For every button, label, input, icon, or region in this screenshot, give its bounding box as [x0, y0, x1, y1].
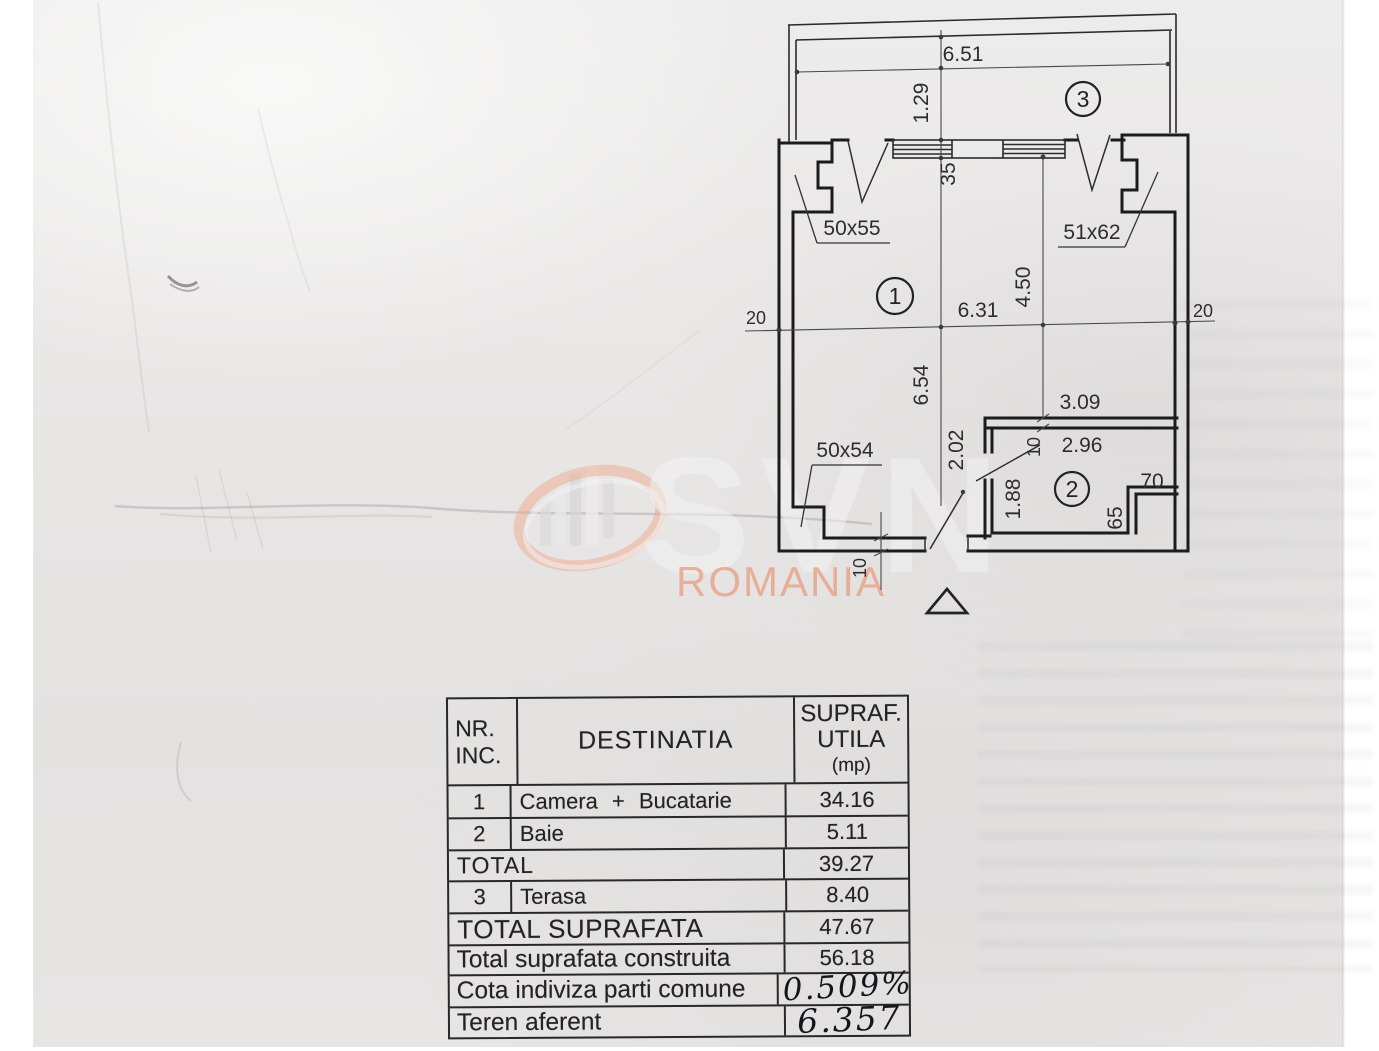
dim-wall-bottom: 10 — [850, 558, 870, 578]
table-row-summary: Teren aferent 6.357 — [450, 1004, 909, 1038]
table-row: 2 Baie 5.11 — [449, 815, 908, 850]
room-3-number: 3 — [1077, 86, 1090, 112]
dim-shaft-width: 70 — [1140, 470, 1163, 493]
table-row: 1 Camera + Bucatarie 34.16 — [448, 782, 907, 818]
header-destinatia: DESTINATIA — [518, 697, 796, 784]
dim-room-depth-left: 6.54 — [910, 364, 933, 405]
header-suprafata: SUPRAF. UTILA (mp) — [795, 697, 908, 783]
room-2-number: 2 — [1066, 476, 1079, 502]
terrace-door-left — [848, 141, 888, 202]
dim-window-offset: 35 — [937, 162, 960, 185]
dim-room-depth-right: 4.50 — [1012, 267, 1035, 308]
window-label-left: 50x55 — [823, 217, 880, 240]
dim-terrace-width: 6.51 — [943, 43, 984, 66]
svn-romania-watermark: SVN ROMANIA — [509, 423, 1009, 607]
area-table: NR. INC. DESTINATIA SUPRAF. UTILA (mp) 1… — [446, 695, 911, 1040]
scan-crease-marks — [98, 2, 872, 801]
table-header: NR. INC. DESTINATIA SUPRAF. UTILA (mp) — [448, 697, 908, 785]
dim-shaft-depth: 65 — [1104, 506, 1127, 529]
dim-bath-depth: 1.88 — [1002, 479, 1025, 520]
dim-room-width: 6.31 — [958, 299, 999, 322]
table-row-total-suprafata: TOTAL SUPRAFATA 47.67 — [449, 910, 908, 945]
window-symbol — [893, 140, 1065, 158]
handwritten-value: 6.357 — [787, 997, 911, 1041]
dim-bath-outer: 3.09 — [1060, 391, 1101, 414]
window-label-right: 51x62 — [1063, 221, 1120, 244]
header-nr-inc: NR. INC. — [448, 699, 519, 784]
room-1-number: 1 — [889, 283, 902, 309]
window-label-bottom: 50x54 — [816, 439, 874, 462]
table-row: 3 Terasa 8.40 — [449, 878, 908, 913]
dim-axis-right: 20 — [1193, 301, 1213, 321]
dim-bath-inner: 2.96 — [1062, 434, 1103, 457]
dim-axis-left: 20 — [746, 308, 766, 328]
table-row-total: TOTAL 39.27 — [449, 847, 908, 881]
terrace-outline — [788, 14, 1176, 142]
dim-door-wall: 2.02 — [945, 430, 968, 471]
dim-terrace-depth: 1.29 — [910, 83, 933, 124]
dim-wall-top: 10 — [1024, 437, 1044, 457]
terrace-door-right — [1077, 134, 1110, 190]
